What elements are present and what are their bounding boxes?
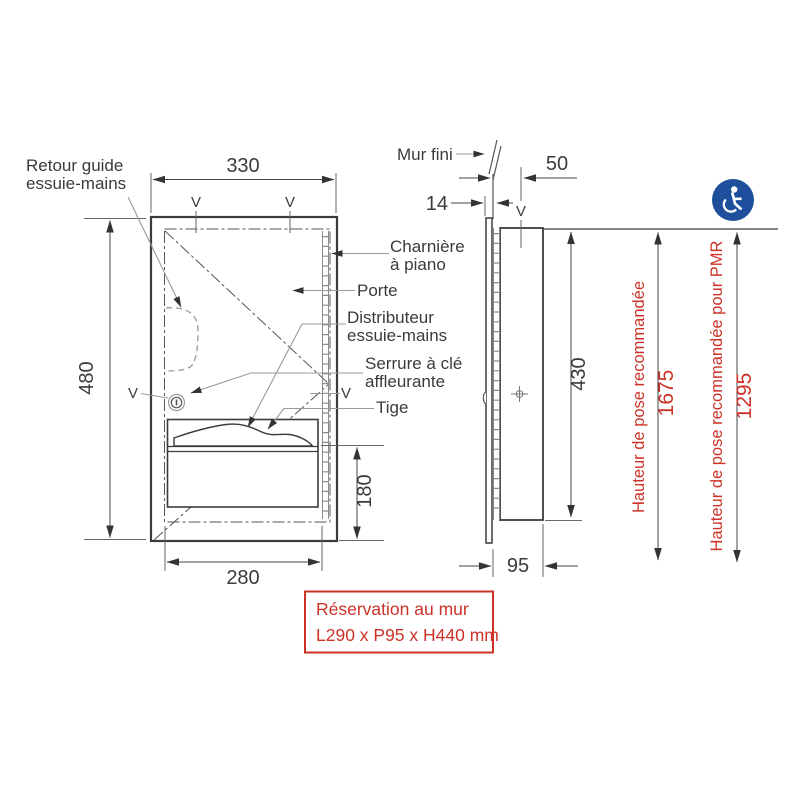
label-serrure-2: affleurante [365, 372, 445, 391]
label-distributeur-2: essuie-mains [347, 326, 447, 345]
label-charniere-1: Charnière [390, 237, 465, 256]
label-mur-fini: Mur fini [397, 145, 453, 164]
value-hauteur-standard: 1675 [655, 370, 678, 417]
side-lock-bump [483, 392, 486, 404]
label-retour-guide-2: essuie-mains [26, 174, 126, 193]
dim-50-value: 50 [546, 153, 568, 175]
label-distributeur-1: Distributeur [347, 308, 434, 327]
label-porte: Porte [357, 281, 398, 300]
reservation-line-2: L290 x P95 x H440 mm [316, 625, 499, 645]
wheelchair-icon [712, 179, 754, 221]
label-hauteur-standard: Hauteur de pose recommandée [630, 281, 648, 513]
dim-430-value: 430 [568, 357, 590, 390]
v-mark-side: V [516, 203, 526, 220]
dim-280-value: 280 [226, 567, 259, 589]
dim-480-value: 480 [76, 361, 98, 394]
label-retour-guide-1: Retour guide [26, 156, 123, 175]
value-hauteur-pmr: 1295 [733, 373, 756, 420]
label-charniere-2: à piano [390, 255, 446, 274]
label-hauteur-pmr: Hauteur de pose recommandée pour PMR [708, 240, 726, 551]
label-serrure-1: Serrure à clé [365, 354, 462, 373]
dim-95-value: 95 [507, 555, 529, 577]
dim-180-value: 180 [354, 474, 376, 507]
v-mark-left: V [128, 385, 138, 402]
side-recessed-box [500, 228, 543, 520]
reservation-note: Réservation au mur L290 x P95 x H440 mm [305, 592, 499, 653]
dim-14-value: 14 [426, 193, 448, 215]
key-lock [169, 395, 185, 411]
mounting-heights: Hauteur de pose recommandée 1675 Hauteur… [630, 233, 756, 563]
side-door-flange [486, 218, 492, 543]
v-mark-right: V [341, 385, 351, 402]
v-mark-top-right: V [285, 194, 295, 211]
dim-330-value: 330 [226, 155, 259, 177]
v-mark-top-left: V [191, 194, 201, 211]
side-hinge-strip [494, 228, 500, 520]
reservation-line-1: Réservation au mur [316, 599, 469, 619]
label-tige: Tige [376, 398, 408, 417]
technical-drawing: V V V V 330 480 280 180 [0, 0, 800, 800]
front-view: V V V V [128, 194, 351, 541]
